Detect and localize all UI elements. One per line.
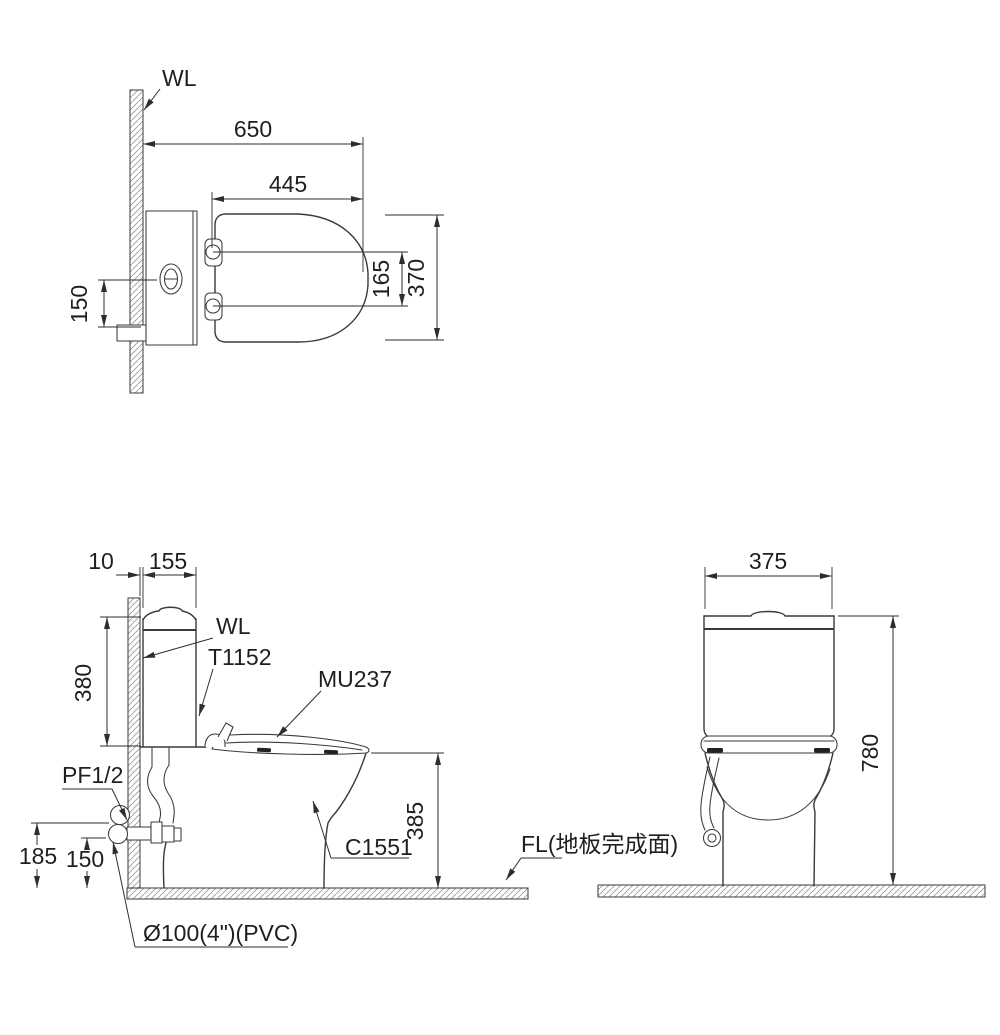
plan-hinge-bottom xyxy=(205,293,222,320)
plan-wall-label-text: WL xyxy=(162,65,197,91)
bowl-model-label: C1551 xyxy=(313,801,413,860)
pedestal-back-profile xyxy=(163,843,166,888)
plan-wall-label: WL xyxy=(144,65,197,110)
plan-wall-leader xyxy=(144,89,160,110)
tank-model-label: T1152 xyxy=(199,644,272,716)
side-dim-10-155: 10 155 xyxy=(88,548,196,608)
side-dim-150: 150 xyxy=(66,838,106,888)
front-seat-bumper-right xyxy=(814,748,830,753)
plan-cistern-body xyxy=(146,211,197,345)
bowl-model-leader xyxy=(313,801,331,858)
plan-view: WL 650 445 165 370 xyxy=(66,65,444,393)
side-seat xyxy=(205,723,369,754)
cistern-lid-top xyxy=(143,607,196,620)
supply-fitting xyxy=(109,806,182,844)
seat-model-label: MU237 xyxy=(277,666,392,737)
dim-380-text: 380 xyxy=(70,664,96,702)
tank-model-leader xyxy=(199,669,213,716)
dim-385-text: 385 xyxy=(402,802,428,840)
plan-cistern xyxy=(146,211,197,345)
front-seat xyxy=(701,736,837,753)
supply-pipe-shaft xyxy=(127,827,151,840)
dim-370-text: 370 xyxy=(403,259,429,297)
dim-165-text: 165 xyxy=(368,260,394,298)
front-cistern xyxy=(704,612,834,738)
dim-445-text: 445 xyxy=(269,171,307,197)
seat-bumper-left xyxy=(257,748,271,752)
side-wall-section xyxy=(128,598,140,888)
trap-tube-inner xyxy=(164,747,174,823)
supply-hose-end xyxy=(704,830,721,847)
side-wall-leader xyxy=(143,638,213,658)
plan-hinges xyxy=(205,239,222,320)
supply-fitting-text: PF1/2 xyxy=(62,762,123,788)
front-floor-section xyxy=(598,885,985,897)
dim-155-text: 155 xyxy=(149,548,187,574)
front-seat-bumper-left xyxy=(707,748,723,753)
supply-valve-nut xyxy=(151,822,162,843)
front-dim-780: 780 xyxy=(838,616,899,885)
bowl-front-profile xyxy=(324,753,366,888)
floor-level-label: FL(地板完成面) xyxy=(506,831,678,880)
seat-model-text: MU237 xyxy=(318,666,392,692)
front-cistern-left xyxy=(704,616,708,737)
supply-pipe-section-lower xyxy=(109,825,128,844)
dim-150-text: 150 xyxy=(66,846,104,872)
dim-650-text: 650 xyxy=(234,116,272,142)
side-wall-label-text: WL xyxy=(216,613,251,639)
front-bowl-left xyxy=(705,753,724,886)
dim-185-text: 185 xyxy=(19,843,57,869)
supply-pipe-section-upper xyxy=(111,806,130,825)
front-bowl-underside-arc xyxy=(707,767,830,820)
supply-hose-inner xyxy=(710,758,719,828)
dim-780-text: 780 xyxy=(857,734,883,772)
seat-model-leader xyxy=(277,691,321,737)
trap-tube xyxy=(148,747,175,823)
front-bowl-right xyxy=(814,753,833,886)
front-cistern-top xyxy=(704,612,834,617)
dim-10-text: 10 xyxy=(88,548,114,574)
seat-bumper-right xyxy=(324,750,338,754)
side-cistern xyxy=(143,607,196,747)
supply-valve-flange xyxy=(162,826,174,842)
dim-375-text: 375 xyxy=(749,548,787,574)
plan-wall-section xyxy=(130,90,143,393)
side-floor-section xyxy=(127,888,528,899)
side-view: 10 155 380 WL T1152 MU237 C1 xyxy=(19,548,678,947)
side-dim-385: 385 xyxy=(371,753,444,888)
technical-drawing: WL 650 445 165 370 xyxy=(0,0,1000,1035)
front-bowl xyxy=(701,753,833,886)
front-cistern-right xyxy=(830,616,834,737)
seat-lid-profile xyxy=(212,734,369,754)
plan-dim-165: 165 xyxy=(368,252,402,306)
plan-dim-445: 445 xyxy=(212,171,363,248)
drain-pipe-text: Ø100(4")(PVC) xyxy=(143,920,298,946)
front-dim-375: 375 xyxy=(705,548,832,609)
floor-level-leader xyxy=(506,858,521,880)
tank-model-text: T1152 xyxy=(208,644,272,670)
supply-valve-end xyxy=(174,828,181,841)
plan-hinge-top xyxy=(205,239,222,266)
plan-seat-lid-outline xyxy=(215,214,368,342)
trap-tube-outer xyxy=(148,747,161,823)
dim-150-text: 150 xyxy=(66,285,92,323)
floor-level-text: FL(地板完成面) xyxy=(521,831,678,857)
